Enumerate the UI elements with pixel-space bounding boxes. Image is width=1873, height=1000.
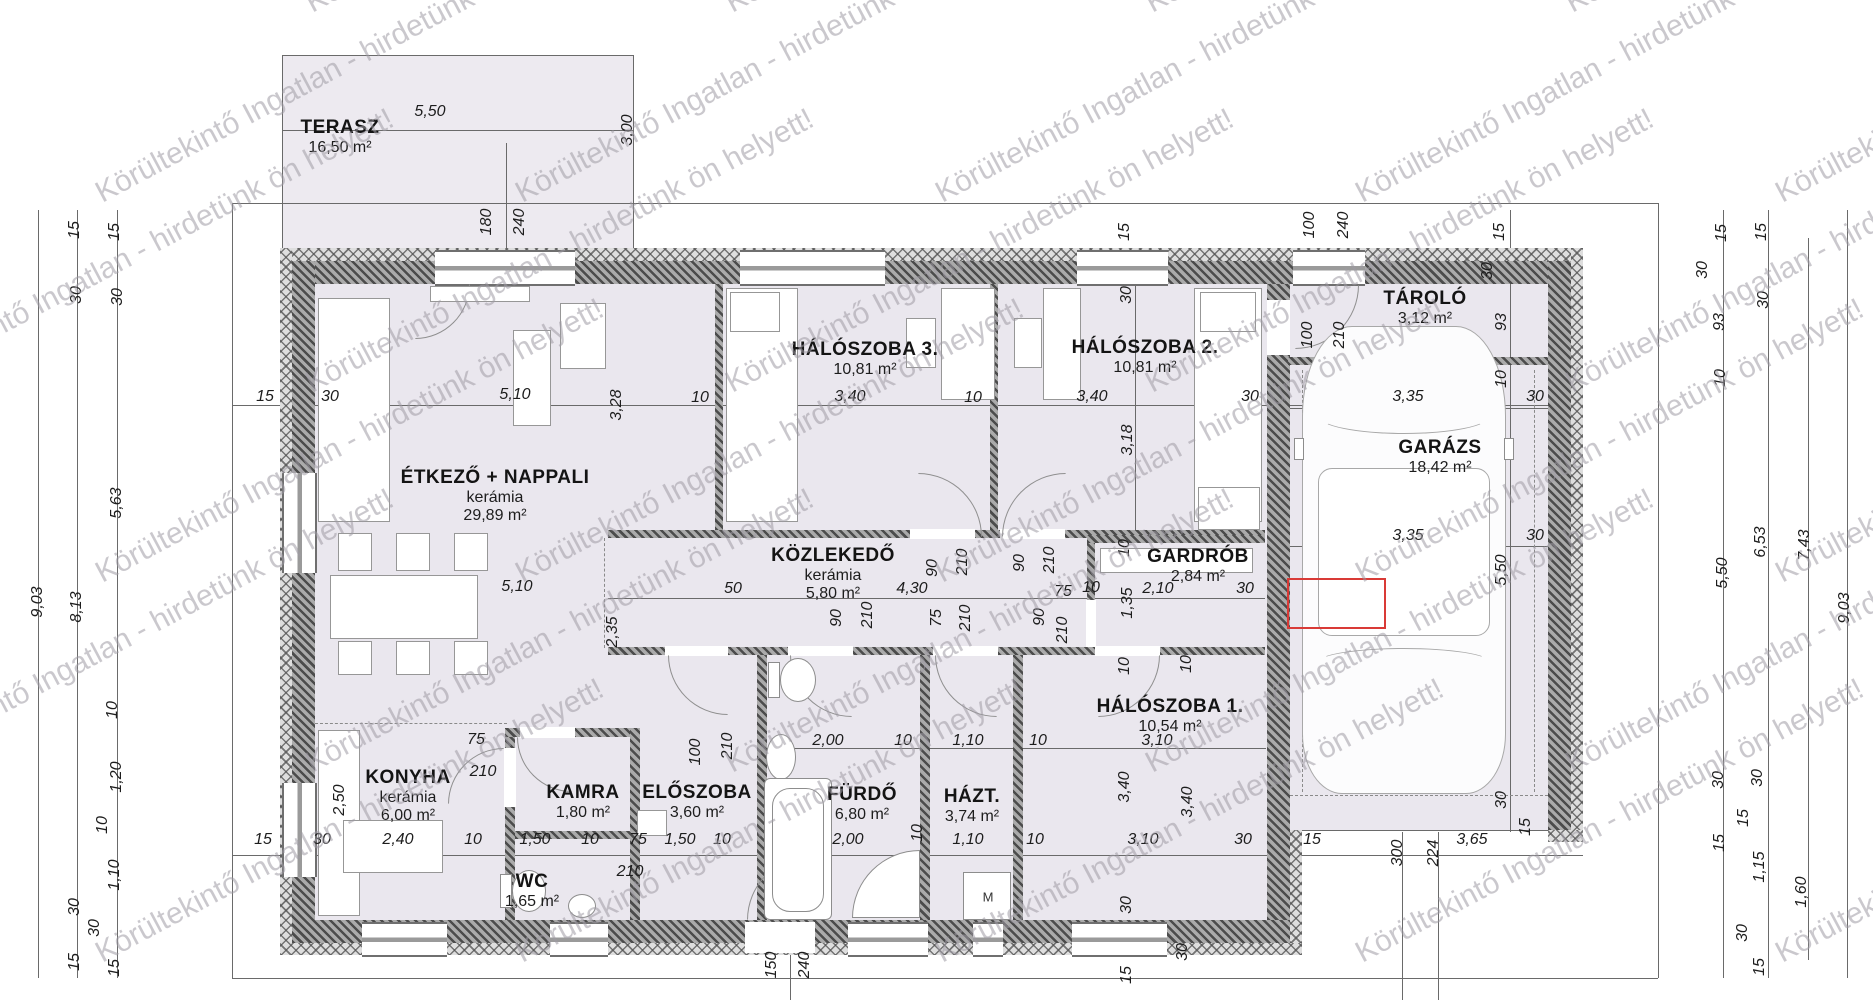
- dim-label: 10: [1029, 732, 1047, 750]
- dimension-line: [1808, 238, 1809, 960]
- dim-label: 10: [691, 389, 709, 407]
- room-area: 3,74 m²: [945, 808, 999, 826]
- floorplan-drawing: M5,503,0018024010024015301002109,0315308…: [0, 0, 1873, 1000]
- furniture: [454, 641, 488, 675]
- dim-label: 1,10: [952, 732, 983, 750]
- dim-label: 3,40: [1076, 388, 1107, 406]
- furniture: [513, 330, 551, 426]
- room-label: KÖZLEKEDŐ: [771, 545, 895, 567]
- car-mirror: [1294, 438, 1304, 460]
- dim-label: 30: [1526, 388, 1544, 406]
- dimension-line: [282, 55, 633, 56]
- dim-label: 5,50: [414, 103, 445, 121]
- room-area: 3,12 m²: [1398, 310, 1452, 328]
- dim-label: 150: [763, 952, 781, 979]
- dim-label: 30: [1694, 261, 1712, 279]
- room-material: kerámia: [467, 489, 524, 507]
- dim-label: 210: [957, 605, 975, 632]
- dim-label: 10: [1116, 657, 1134, 675]
- dim-label: 10: [964, 389, 982, 407]
- dim-label: 90: [924, 559, 942, 577]
- window: [362, 922, 447, 957]
- dim-label: 15: [1735, 809, 1753, 827]
- room-area: 10,54 m²: [1138, 718, 1201, 736]
- dimension-line: [633, 55, 634, 248]
- dim-label: 210: [617, 863, 644, 881]
- dim-label: 100: [1299, 322, 1317, 349]
- insulation-strip: [1290, 830, 1302, 943]
- dim-label: 15: [1491, 223, 1509, 241]
- dim-label: 10: [94, 816, 112, 834]
- sink: [568, 894, 596, 918]
- dim-label: 15: [66, 221, 84, 239]
- room-label: HÁLÓSZOBA 1.: [1097, 696, 1244, 718]
- window: [282, 473, 317, 573]
- dim-label: 10: [581, 831, 599, 849]
- dim-label: 10: [464, 831, 482, 849]
- room-area: 16,50 m²: [308, 139, 371, 157]
- room-label: ÉTKEZŐ + NAPPALI: [401, 467, 590, 489]
- toilet-bowl: [780, 658, 816, 702]
- dim-label: 210: [954, 549, 972, 576]
- dim-label: 15: [1713, 224, 1731, 242]
- dim-label: 210: [1054, 617, 1072, 644]
- washing-machine: M: [963, 872, 1011, 920]
- dim-label: 3,18: [1119, 424, 1137, 455]
- dim-label: 3,40: [1116, 771, 1134, 802]
- wall-segment: [1087, 535, 1265, 543]
- room-label: HÁLÓSZOBA 3.: [792, 339, 939, 361]
- window: [973, 922, 1003, 957]
- dim-label: 30: [1236, 580, 1254, 598]
- room-material: kerámia: [380, 789, 437, 807]
- dim-label: 3,28: [608, 389, 626, 420]
- dim-label: 30: [1710, 771, 1728, 789]
- dim-label: 2,50: [331, 784, 349, 815]
- room-area: 18,42 m²: [1408, 459, 1471, 477]
- wall-segment: [1013, 655, 1023, 920]
- dim-label: 240: [1335, 212, 1353, 239]
- dim-label: 8,13: [68, 591, 86, 622]
- dashed-line: [1534, 370, 1535, 792]
- furniture: [318, 298, 390, 522]
- dim-label: 10: [1082, 579, 1100, 597]
- dim-label: 3,65: [1456, 831, 1487, 849]
- dimension-line: [232, 203, 233, 978]
- dim-label: 15: [106, 223, 124, 241]
- dim-label: 30: [1526, 527, 1544, 545]
- dim-label: 1,50: [664, 831, 695, 849]
- dim-label: 93: [1493, 313, 1511, 331]
- door-opening: [1267, 300, 1290, 355]
- dim-label: 15: [1711, 834, 1729, 852]
- dim-label: 10: [1493, 370, 1511, 388]
- dim-label: 75: [629, 831, 647, 849]
- dimension-line: [1135, 284, 1136, 532]
- furniture: [330, 575, 478, 639]
- dim-label: 2,35: [604, 616, 622, 647]
- dim-label: 1,50: [519, 831, 550, 849]
- dim-label: 2,40: [382, 831, 413, 849]
- window: [1293, 250, 1365, 286]
- dim-label: 10: [713, 831, 731, 849]
- furniture: [338, 641, 372, 675]
- room-label: KAMRA: [546, 782, 619, 804]
- dim-label: 30: [1493, 791, 1511, 809]
- window: [550, 922, 608, 957]
- dim-label: 3,10: [1127, 831, 1158, 849]
- room-label: HÁLÓSZOBA 2.: [1072, 337, 1219, 359]
- dimension-line: [1510, 210, 1511, 832]
- dim-label: 15: [1116, 223, 1134, 241]
- wall-segment: [715, 284, 723, 530]
- room-label: TERASZ: [301, 117, 380, 139]
- room-label: TÁROLÓ: [1383, 288, 1466, 310]
- room-area: 6,00 m²: [381, 807, 435, 825]
- dim-label: 15: [1517, 818, 1535, 836]
- dim-label: 5,10: [501, 578, 532, 596]
- dim-label: 90: [828, 609, 846, 627]
- dimension-line: [232, 978, 1658, 979]
- dim-label: 75: [1054, 583, 1072, 601]
- dim-label: 1,60: [1793, 876, 1811, 907]
- dim-label: 90: [1031, 608, 1049, 626]
- room-label: GARDRÓB: [1147, 546, 1249, 568]
- furniture: [396, 533, 430, 571]
- dim-label: 10: [1026, 831, 1044, 849]
- dim-label: 1,15: [1751, 851, 1769, 882]
- room-label: KONYHA: [365, 767, 450, 789]
- dim-label: 30: [109, 288, 127, 306]
- furniture: [941, 288, 995, 400]
- furniture: [396, 641, 430, 675]
- dim-label: 50: [724, 580, 742, 598]
- furniture: [560, 303, 606, 369]
- dim-label: 9,03: [1836, 592, 1854, 623]
- dim-label: 210: [859, 602, 877, 629]
- dim-label: 240: [511, 209, 529, 236]
- car-rear-line: [1318, 648, 1490, 676]
- dim-label: 30: [1118, 286, 1136, 304]
- dim-label: 2,00: [812, 732, 843, 750]
- dim-label: 3,35: [1392, 527, 1423, 545]
- door-opening: [1086, 600, 1096, 647]
- dim-label: 15: [256, 388, 274, 406]
- dim-label: 10: [1178, 655, 1196, 673]
- dim-label: 300: [1389, 840, 1407, 867]
- furniture: [1200, 292, 1256, 332]
- car-mirror: [1504, 438, 1514, 460]
- dim-label: 10: [104, 701, 122, 719]
- dim-label: 30: [1755, 291, 1773, 309]
- furniture: [430, 286, 530, 302]
- dim-label: 1,10: [106, 859, 124, 890]
- dim-label: 30: [321, 388, 339, 406]
- dim-label: 100: [687, 739, 705, 766]
- dimension-line: [506, 143, 507, 250]
- furniture: [338, 533, 372, 571]
- dimension-line: [282, 55, 283, 248]
- furniture: [1014, 318, 1042, 368]
- dim-label: 30: [1234, 831, 1252, 849]
- dim-label: 2,00: [832, 831, 863, 849]
- dim-label: 5,50: [1493, 554, 1511, 585]
- room-label: WC: [516, 871, 549, 893]
- dim-label: 15: [1303, 831, 1321, 849]
- dimension-line: [608, 598, 1265, 599]
- dim-label: 15: [66, 953, 84, 971]
- room-area: 10,81 m²: [1113, 359, 1176, 377]
- room-area: 3,60 m²: [670, 804, 724, 822]
- dim-label: 210: [470, 763, 497, 781]
- room-label: ELŐSZOBA: [642, 782, 752, 804]
- dim-label: 2,10: [1142, 580, 1173, 598]
- dim-label: 1,35: [1119, 587, 1137, 618]
- dim-label: 1,20: [108, 761, 126, 792]
- room-area: 29,89 m²: [463, 507, 526, 525]
- highlight-box: [1287, 578, 1386, 629]
- dashed-line: [315, 723, 507, 724]
- dim-label: 30: [313, 831, 331, 849]
- dim-label: 15: [254, 831, 272, 849]
- dim-label: 10: [894, 732, 912, 750]
- dim-label: 5,10: [499, 386, 530, 404]
- dim-label: 100: [1301, 212, 1319, 239]
- dim-label: 30: [68, 286, 86, 304]
- dim-label: 4,30: [896, 580, 927, 598]
- insulation-strip: [1571, 248, 1583, 842]
- door-opening: [504, 748, 516, 807]
- dim-label: 5,63: [108, 487, 126, 518]
- dim-label: 30: [1749, 769, 1767, 787]
- dim-label: 224: [1425, 840, 1443, 867]
- wall-segment: [920, 655, 930, 920]
- dim-label: 210: [719, 733, 737, 760]
- dim-label: 90: [1011, 554, 1029, 572]
- dim-label: 75: [467, 731, 485, 749]
- dim-label: 1,10: [952, 831, 983, 849]
- dim-label: 9,03: [29, 586, 47, 617]
- dim-label: 93: [1711, 313, 1729, 331]
- dim-label: 15: [1751, 958, 1769, 976]
- room-area: 1,65 m²: [505, 893, 559, 911]
- dim-label: 30: [1479, 262, 1497, 280]
- dim-label: 30: [1118, 896, 1136, 914]
- dim-label: 180: [478, 209, 496, 236]
- room-label: GARÁZS: [1398, 437, 1481, 459]
- dim-label: 5,50: [1714, 557, 1732, 588]
- dimension-line: [1290, 830, 1583, 831]
- door-opening: [745, 922, 815, 953]
- window: [848, 922, 928, 957]
- dim-label: 10: [909, 824, 927, 842]
- dim-label: 15: [106, 959, 124, 977]
- dim-label: 30: [66, 898, 84, 916]
- dim-label: 210: [1331, 322, 1349, 349]
- dim-label: 3,35: [1392, 388, 1423, 406]
- dim-label: 30: [1174, 943, 1192, 961]
- sink: [766, 734, 796, 780]
- dim-label: 3,40: [1179, 786, 1197, 817]
- wall-segment: [1548, 261, 1571, 830]
- dim-label: 10: [1116, 539, 1134, 557]
- toilet-tank: [768, 662, 780, 698]
- room-area: 10,81 m²: [833, 361, 896, 379]
- window: [435, 250, 575, 286]
- dimension-line: [232, 203, 1658, 204]
- room-area: 6,80 m²: [835, 806, 889, 824]
- dim-label: 15: [1118, 966, 1136, 984]
- furniture: [730, 292, 780, 332]
- furniture: [1198, 487, 1260, 530]
- furniture: [454, 533, 488, 571]
- window: [1077, 250, 1168, 286]
- room-area: 2,84 m²: [1171, 568, 1225, 586]
- insulation-strip: [1548, 830, 1583, 842]
- bathtub-inner: [772, 788, 824, 912]
- dim-label: 3,00: [619, 114, 637, 145]
- dim-label: 240: [796, 952, 814, 979]
- dim-label: 10: [1712, 369, 1730, 387]
- washing-machine-label: M: [983, 890, 994, 905]
- window: [1072, 922, 1167, 957]
- dimension-line: [1658, 203, 1659, 978]
- dim-label: 6,53: [1752, 526, 1770, 557]
- room-label: HÁZT.: [944, 786, 1000, 808]
- room-material: kerámia: [805, 567, 862, 585]
- dim-label: 7,43: [1796, 529, 1814, 560]
- room-area: 5,80 m²: [806, 585, 860, 603]
- window: [282, 783, 317, 877]
- window: [740, 250, 885, 286]
- dim-label: 210: [1041, 547, 1059, 574]
- dim-label: 15: [1753, 223, 1771, 241]
- room-label: FÜRDŐ: [827, 784, 897, 806]
- dim-label: 3,40: [834, 388, 865, 406]
- dim-label: 75: [928, 609, 946, 627]
- dim-label: 30: [1241, 388, 1259, 406]
- dim-label: 30: [1734, 924, 1752, 942]
- room-area: 1,80 m²: [556, 804, 610, 822]
- floorplan-canvas: M5,503,0018024010024015301002109,0315308…: [0, 0, 1873, 1000]
- dim-label: 30: [86, 919, 104, 937]
